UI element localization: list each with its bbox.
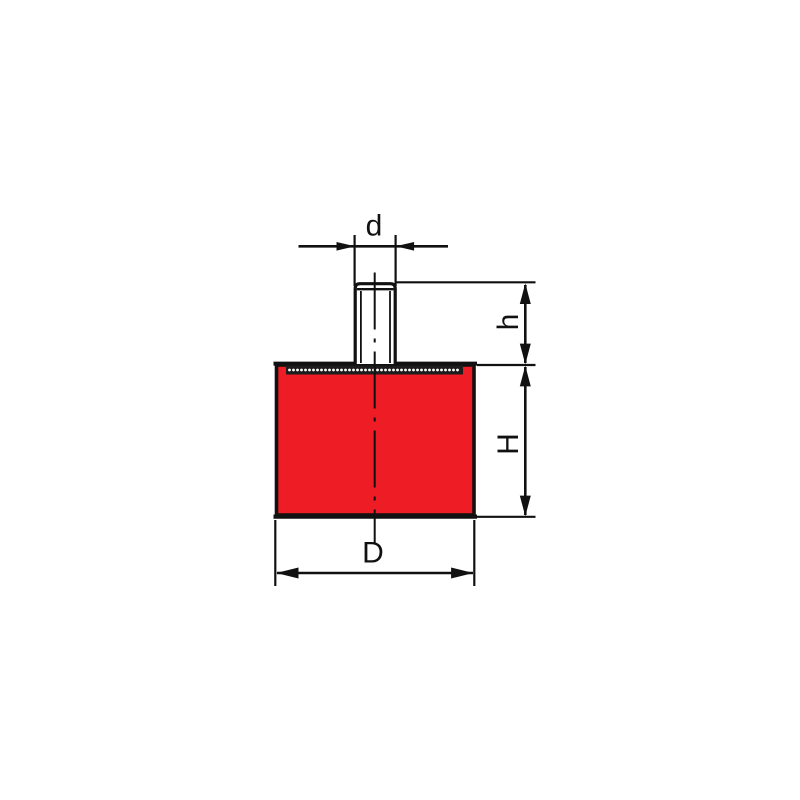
svg-text:d: d [366,210,383,243]
svg-text:h: h [492,314,525,331]
svg-text:D: D [362,537,384,570]
svg-text:H: H [492,433,525,455]
